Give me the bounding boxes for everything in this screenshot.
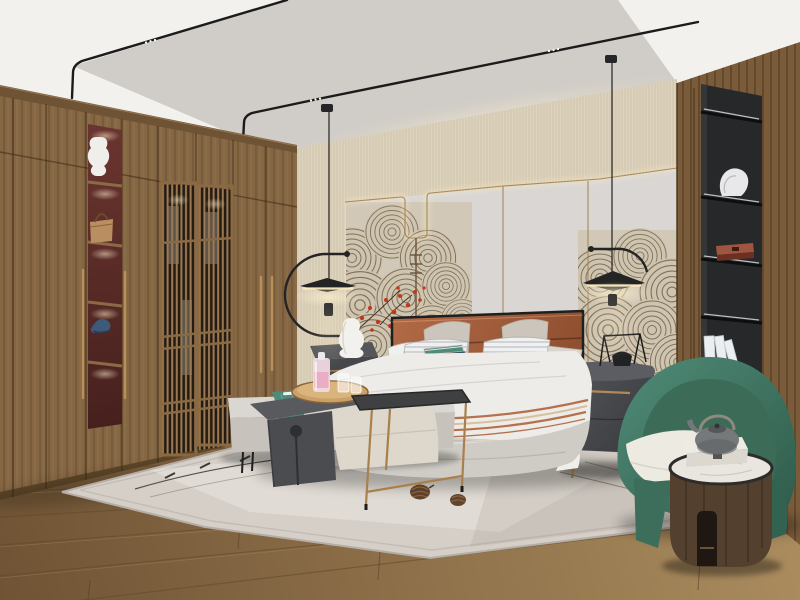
pendant-canopy-left <box>321 104 333 112</box>
pendant-canopy-right <box>605 55 617 63</box>
c-table-panel <box>268 411 336 487</box>
white-vase <box>88 137 109 176</box>
display-niche <box>701 84 762 400</box>
wardrobe-niche <box>88 124 122 429</box>
lattice-doors <box>160 182 233 456</box>
red-box <box>716 243 754 261</box>
drum-notch <box>697 511 717 566</box>
bedroom-render <box>0 0 800 600</box>
